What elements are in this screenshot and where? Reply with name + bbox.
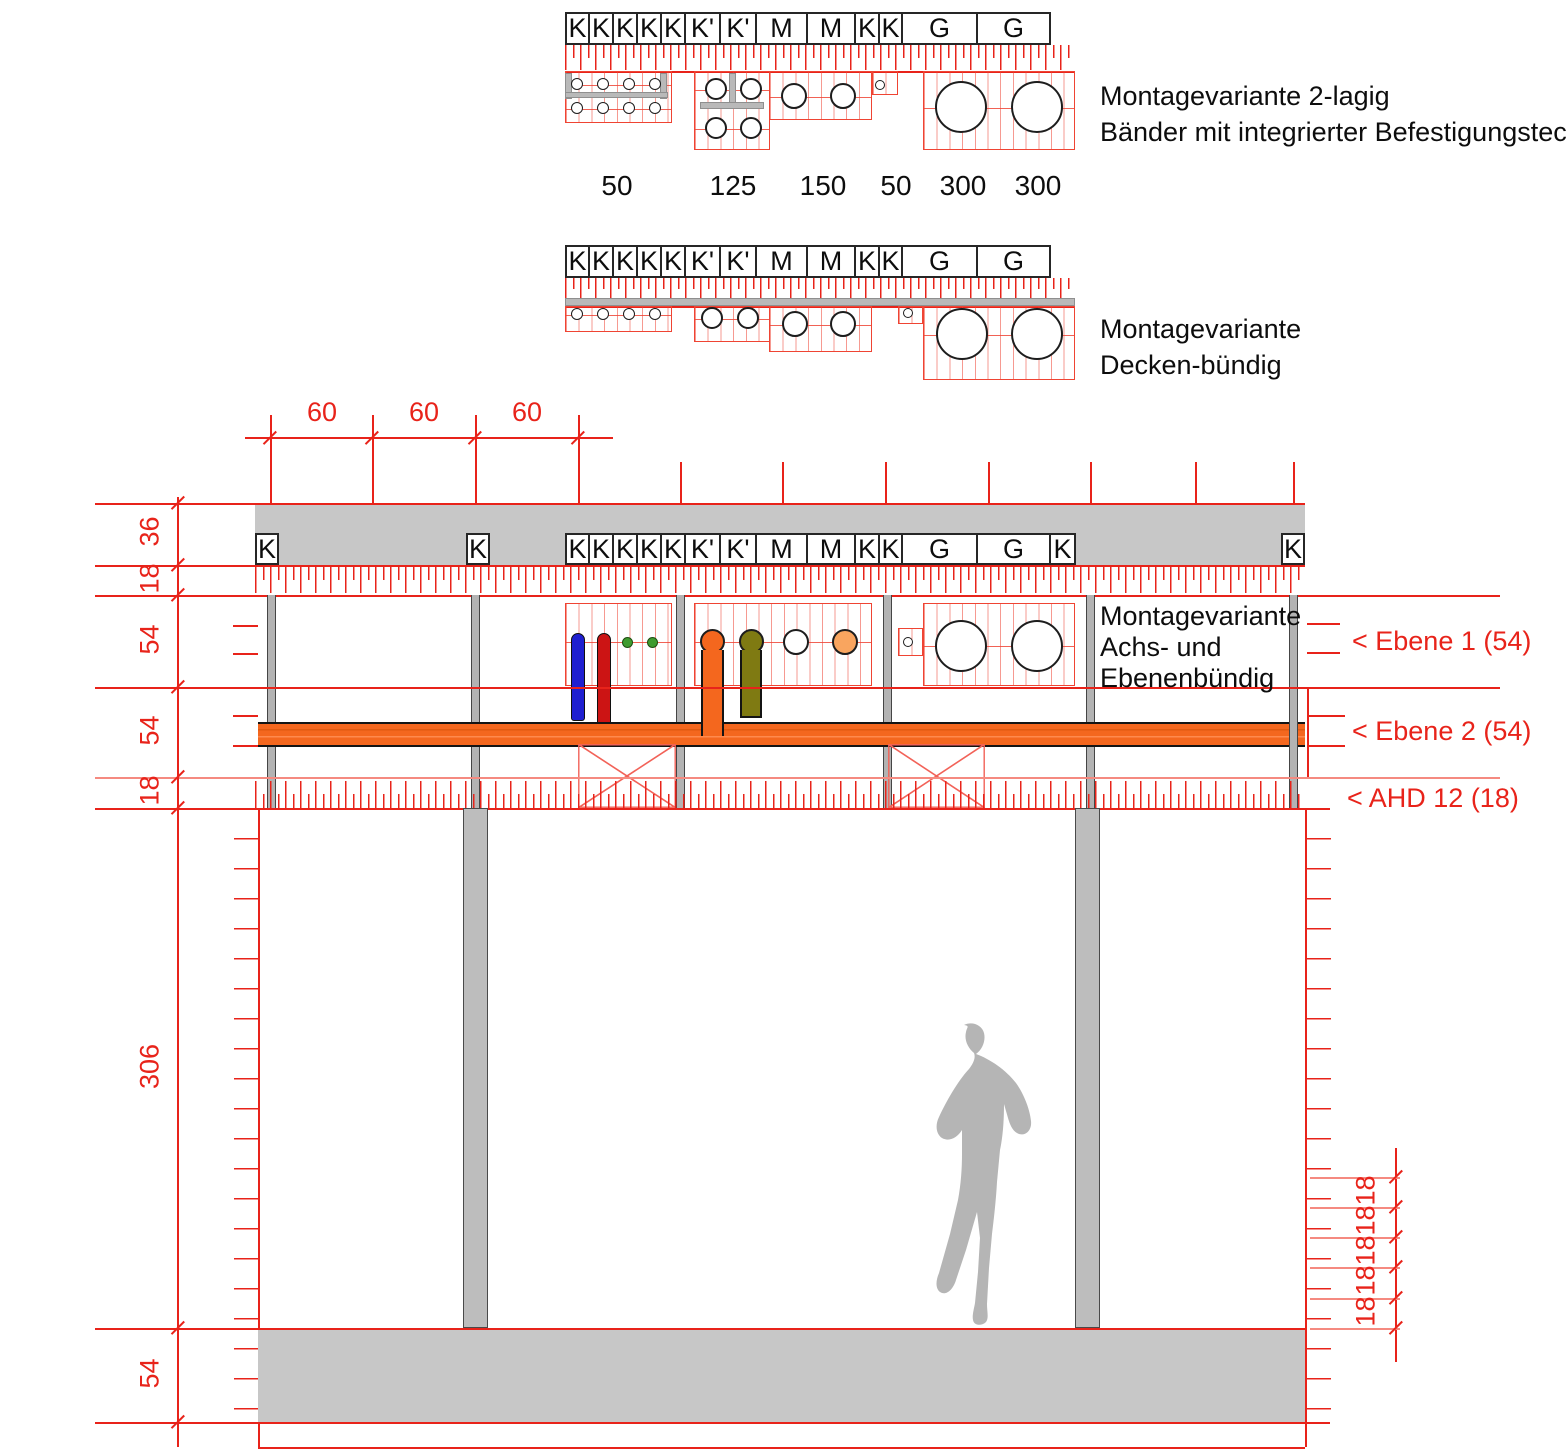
pipe-circle (783, 629, 809, 655)
tick-strip (565, 45, 1075, 70)
module-cell: K (878, 245, 903, 278)
module-cell: G (976, 245, 1051, 278)
bracket-bar (565, 92, 668, 98)
k-header-box: K (255, 533, 279, 565)
level-label-ebene2: < Ebene 2 (54) (1352, 716, 1531, 747)
dim-label: 18 (1351, 1272, 1382, 1352)
module-cell: K (612, 245, 638, 278)
module-cell: G (976, 533, 1051, 565)
ebene2-band (258, 722, 1305, 747)
pipe-circle-filled (832, 629, 858, 655)
pipe-circle (649, 102, 661, 114)
pipe-circle (740, 117, 762, 139)
pipe-circle (649, 78, 661, 90)
pipe-orange-riser (701, 650, 724, 736)
dim-label: 50 (572, 170, 662, 202)
module-cell: K' (719, 245, 757, 278)
section-caption: Montagevariante Achs- und Ebenenbündig (1100, 601, 1301, 694)
wall-column (1075, 808, 1100, 1328)
dim-label: 60 (384, 397, 464, 428)
module-cell: K' (684, 245, 721, 278)
level-line-ahd-bottom (95, 808, 1330, 810)
pipe-circle (571, 102, 583, 114)
pipe-circle (903, 308, 913, 318)
diagram1-header-row: K K K K K K' K' M M K K G G (565, 12, 1049, 45)
bracket-bar (729, 73, 736, 105)
pipe-circle (737, 307, 759, 329)
pipe-circle (597, 102, 609, 114)
module-cell: K (612, 12, 638, 45)
module-cell: K (588, 245, 614, 278)
person-silhouette (920, 1022, 1038, 1328)
level-mark (233, 625, 258, 627)
pipe-circle (903, 637, 913, 647)
pipe-circle (740, 78, 762, 100)
pipe-circle (1011, 620, 1063, 672)
dim-label: 60 (282, 397, 362, 428)
dim-label: 306 (135, 1027, 166, 1107)
ceiling-band-bar (565, 298, 1075, 306)
level-label-ahd: < AHD 12 (18) (1347, 783, 1519, 814)
dot-green (647, 637, 658, 648)
wall-column (463, 808, 488, 1328)
module-cell: K (636, 245, 662, 278)
pipe-circle (649, 308, 661, 320)
module-cell: K (612, 533, 638, 565)
pipe-circle (782, 311, 808, 337)
module-cell: K (588, 533, 614, 565)
installation-section-drawing: K K K K K K' K' M M K K G G (0, 0, 1566, 1454)
dimension-line (245, 437, 613, 439)
floor-top-line (95, 1328, 1305, 1330)
level-mark (1307, 745, 1345, 747)
module-cell: G (901, 245, 978, 278)
pipe-circle (597, 78, 609, 90)
module-cell: M (755, 12, 808, 45)
k-header-box: K (1281, 533, 1305, 565)
pipe-circle (701, 307, 723, 329)
bottom-line (258, 1447, 1305, 1449)
pipe-olive-body (740, 650, 762, 718)
pipe-circle (1011, 81, 1063, 133)
module-cell: K (854, 533, 880, 565)
module-cell: K (636, 533, 662, 565)
module-cell: K (636, 12, 662, 45)
module-cell: K' (719, 533, 757, 565)
pipe-circle (935, 81, 987, 133)
module-cell: K (565, 533, 590, 565)
pipe-circle (571, 78, 583, 90)
pipe-circle (830, 311, 856, 337)
module-cell: K' (684, 533, 721, 565)
pipe-circle (781, 83, 807, 109)
module-cell: K' (684, 12, 721, 45)
pipe-circle (597, 308, 609, 320)
module-cell: G (901, 533, 978, 565)
dim-label: 54 (135, 1334, 166, 1414)
module-cell: K (878, 533, 903, 565)
dot-green (622, 637, 633, 648)
diagram2-header-row: K K K K K K' K' M M K K G G (565, 245, 1049, 278)
module-cell: G (976, 12, 1051, 45)
k-header-box: K (466, 533, 490, 565)
pipe-circle (1011, 308, 1063, 360)
level-mark (233, 653, 258, 655)
module-cell: K (660, 533, 686, 565)
dim-label: 18 (135, 751, 166, 831)
diagram2-caption: Montagevariante Decken-bündig (1100, 311, 1301, 383)
pipe-circle (571, 308, 583, 320)
level-label-ebene1: < Ebene 1 (54) (1352, 626, 1531, 657)
level-line-ebene2-bottom (95, 777, 1500, 779)
left-wall-ruler (234, 838, 258, 1438)
slab-top-line (95, 503, 1305, 505)
dim-label: 300 (993, 170, 1083, 202)
diagram1-caption: Montagevariante 2-lagig Bänder mit integ… (1100, 78, 1566, 150)
level-mark-line (1307, 687, 1309, 777)
pipe-circle (623, 78, 635, 90)
dimension-line-vertical (177, 497, 179, 1447)
level-mark (1307, 623, 1340, 625)
tick-strip (255, 566, 1305, 593)
dim-label: 125 (688, 170, 778, 202)
level-mark (233, 715, 258, 717)
module-cell: K (854, 245, 880, 278)
module-cell: K (660, 245, 686, 278)
pipe-circle (935, 620, 987, 672)
module-cell: M (755, 245, 808, 278)
pipe-circle (623, 102, 635, 114)
dim-label: 60 (487, 397, 567, 428)
level-mark (233, 745, 258, 747)
dim-label: 54 (135, 600, 166, 680)
pipe-circle (875, 80, 885, 90)
module-cell: K (854, 12, 880, 45)
module-cell: K (565, 245, 590, 278)
ahd-tick-strip (255, 781, 1305, 808)
bracket-bar (700, 102, 764, 109)
module-cell: K (1049, 533, 1076, 565)
module-cell: K (588, 12, 614, 45)
module-cell: K (878, 12, 903, 45)
tick-strip (565, 278, 1075, 300)
floor-slab (258, 1328, 1305, 1422)
pipe-red (597, 633, 611, 728)
right-wall-ruler (1306, 838, 1331, 1438)
pipe-circle (705, 117, 727, 139)
level-mark (1307, 715, 1345, 717)
module-cell: K (565, 12, 590, 45)
pipe-circle (623, 308, 635, 320)
module-cell: K (660, 12, 686, 45)
module-cell: M (806, 12, 856, 45)
module-cell: M (806, 245, 856, 278)
pipe-circle (830, 83, 856, 109)
floor-bottom-line (95, 1422, 1330, 1424)
module-cell: M (806, 533, 856, 565)
section-header-row: K K K K K K' K' M M K K G G K (565, 533, 1074, 565)
module-cell: K' (719, 12, 757, 45)
pipe-circle (936, 308, 988, 360)
module-cell: G (901, 12, 978, 45)
module-cell: M (755, 533, 808, 565)
pipe-circle (705, 78, 727, 100)
level-mark (1307, 652, 1340, 654)
pipe-blue (571, 633, 585, 721)
